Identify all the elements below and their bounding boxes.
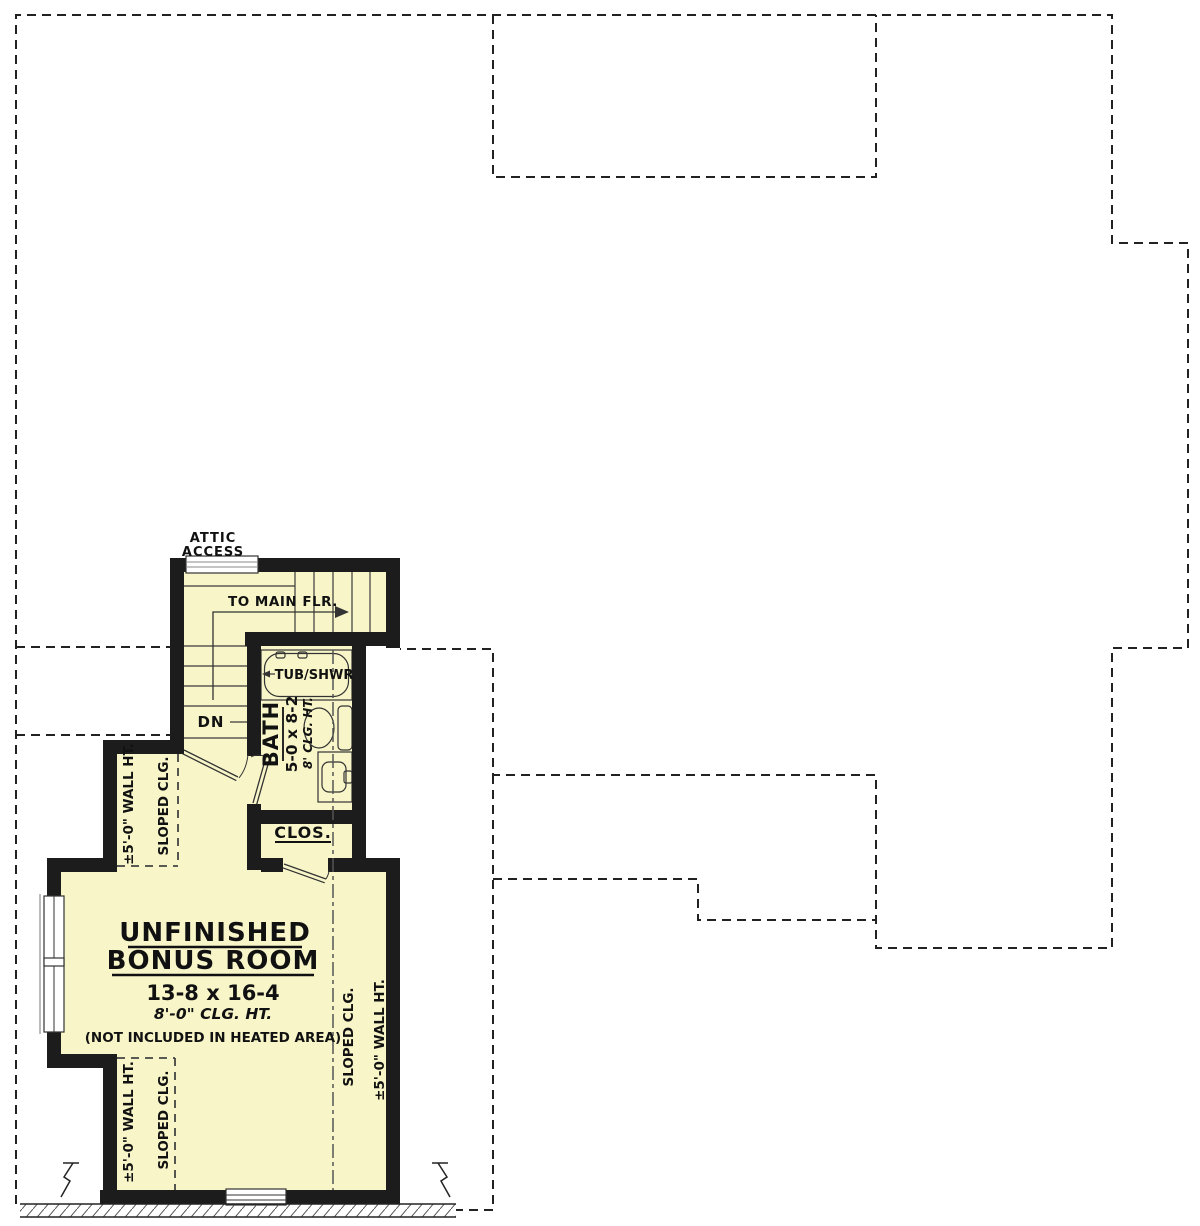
bonus-room-ceiling: 8'-0" CLG. HT.: [154, 1005, 272, 1023]
to-main-floor-label: TO MAIN FLR.: [228, 594, 338, 610]
bonus-room-name-2: BONUS ROOM: [107, 946, 320, 976]
outline-inner-step: [493, 879, 876, 920]
bath-ceiling-label: 8' CLG. HT.: [301, 697, 315, 769]
floor-plan: ATTIC ACCESS TO MAIN FLR. DN TUB/SHWR BA…: [0, 0, 1200, 1226]
sloped-clg-label-right: SLOPED CLG.: [341, 987, 357, 1086]
sloped-clg-label-upper-left: SLOPED CLG.: [156, 756, 172, 855]
eave-strip: [20, 1204, 456, 1217]
stair-door-gap-fill: [184, 740, 247, 754]
closet-label: CLOS.: [274, 823, 332, 842]
attic-access-label-2: ACCESS: [182, 545, 244, 560]
sloped-clg-label-lower-left: SLOPED CLG.: [156, 1070, 172, 1169]
wall-height-label-right: ±5'-0" WALL HT.: [372, 979, 388, 1101]
break-mark-right: [432, 1163, 450, 1197]
floor-plan-drawing: ATTIC ACCESS TO MAIN FLR. DN TUB/SHWR BA…: [0, 0, 1200, 1226]
down-label: DN: [197, 713, 224, 731]
break-mark-left: [61, 1163, 79, 1197]
wall-height-label-upper-left: ±5'-0" WALL HT.: [121, 743, 137, 865]
bonus-room-note: (NOT INCLUDED IN HEATED AREA): [85, 1030, 341, 1046]
wall-height-label-lower-left: ±5'-0" WALL HT.: [121, 1061, 137, 1183]
outline-eave-right: [456, 775, 493, 1210]
bath-dims-label: 5-0 x 8-2: [283, 696, 301, 773]
attic-access-label-1: ATTIC: [190, 531, 236, 546]
tub-shower-label: TUB/SHWR: [275, 668, 354, 683]
outline-inner-top: [493, 15, 876, 177]
bonus-room-dims: 13-8 x 16-4: [146, 981, 279, 1005]
window-bottom: [226, 1189, 286, 1205]
bath-name-label: BATH: [259, 701, 283, 768]
bonus-room-name-1: UNFINISHED: [119, 918, 311, 948]
window-left: [40, 894, 64, 1034]
